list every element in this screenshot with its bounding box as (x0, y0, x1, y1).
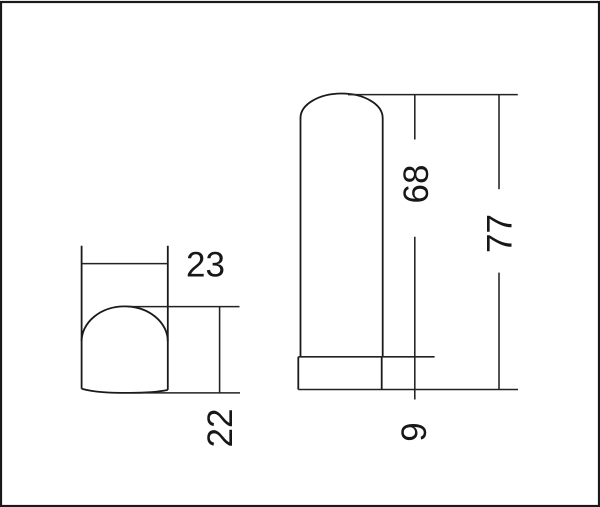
svg-text:9: 9 (395, 422, 434, 441)
svg-text:23: 23 (186, 246, 225, 285)
svg-text:77: 77 (481, 214, 520, 253)
svg-text:22: 22 (201, 409, 240, 448)
svg-text:68: 68 (397, 165, 436, 204)
